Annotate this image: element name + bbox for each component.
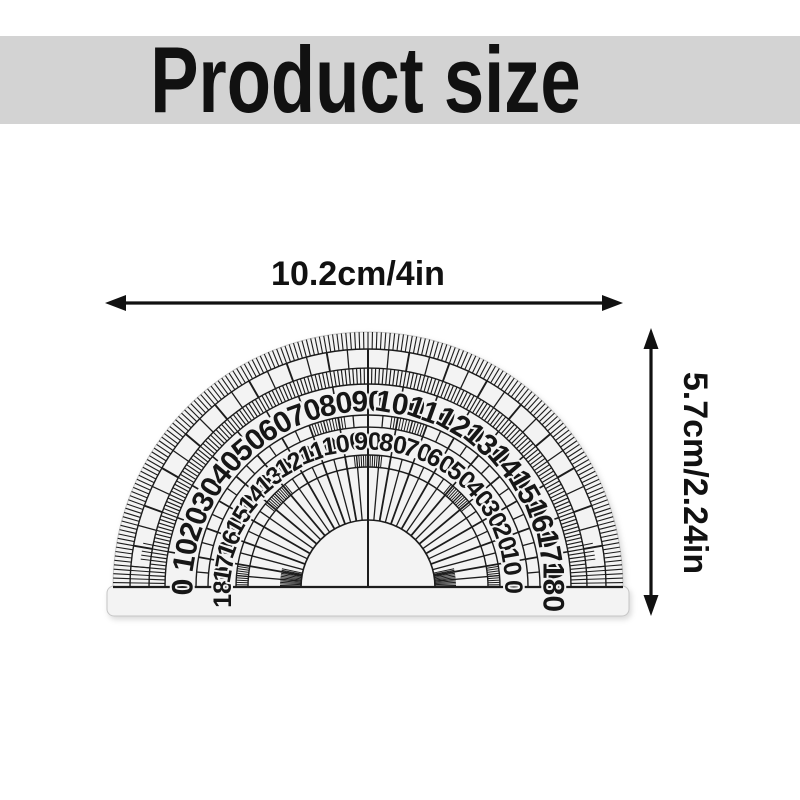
outer-scale-label-value: 80 [317, 386, 356, 424]
height-dimension-label: 5.7cm/2.24in [676, 372, 714, 574]
width-dimension: 10.2cm/4in [105, 255, 623, 311]
height-arrow-top-head-icon [644, 328, 659, 349]
outer-scale-label-value: 180 [537, 562, 570, 612]
figure-canvas: 0102030405060708090100110120130140150160… [0, 0, 800, 800]
inner-scale-label-value: 0 [499, 580, 527, 594]
width-arrow-left-head-icon [105, 295, 126, 311]
protractor: 0102030405060708090100110120130140150160… [107, 332, 629, 616]
outer-scale-label-value: 0 [167, 579, 200, 596]
width-dimension-label: 10.2cm/4in [271, 255, 445, 293]
height-arrow-bottom-head-icon [644, 595, 659, 616]
inner-scale-label-value: 10 [495, 546, 527, 578]
height-dimension: 5.7cm/2.24in [644, 328, 715, 616]
width-arrow-right-head-icon [602, 295, 623, 311]
